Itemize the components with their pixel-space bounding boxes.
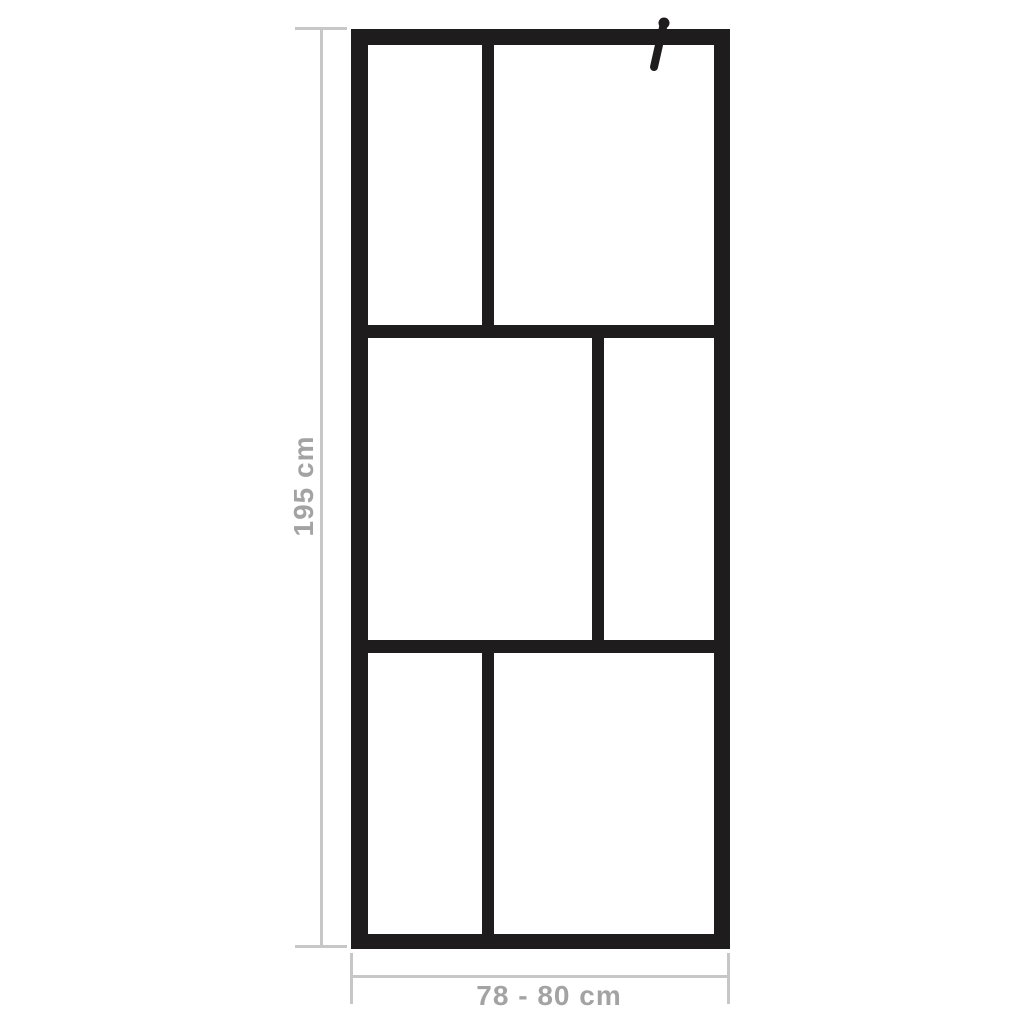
support-bar-icon [638,6,682,82]
mullion-middle-section [592,338,604,640]
glass-panel-middle-left [368,338,592,640]
product-diagram: 195 cm 78 - 80 cm [0,0,1024,1024]
frame-bottom-bar [351,934,730,949]
frame-divider-lower [366,640,716,653]
glass-panel-top-left [368,45,482,325]
height-dimension-line [320,28,323,948]
mullion-bottom-section [482,653,494,934]
glass-panel-bottom-left [368,653,482,934]
width-dimension-line [351,975,730,978]
mullion-top-section [482,45,494,325]
frame-divider-upper [366,325,716,338]
height-dimension-cap-top [295,27,347,30]
glass-panel-top-right [494,45,714,325]
glass-panel-middle-right [604,338,714,640]
glass-panel-bottom-right [494,653,714,934]
height-dimension-cap-bottom [295,945,347,948]
frame-right-bar [714,29,730,949]
width-dimension-cap-left [350,953,353,1004]
height-dimension-label: 195 cm [288,436,320,537]
frame-left-bar [351,29,368,949]
width-dimension-cap-right [727,953,730,1004]
width-dimension-label: 78 - 80 cm [476,980,621,1012]
